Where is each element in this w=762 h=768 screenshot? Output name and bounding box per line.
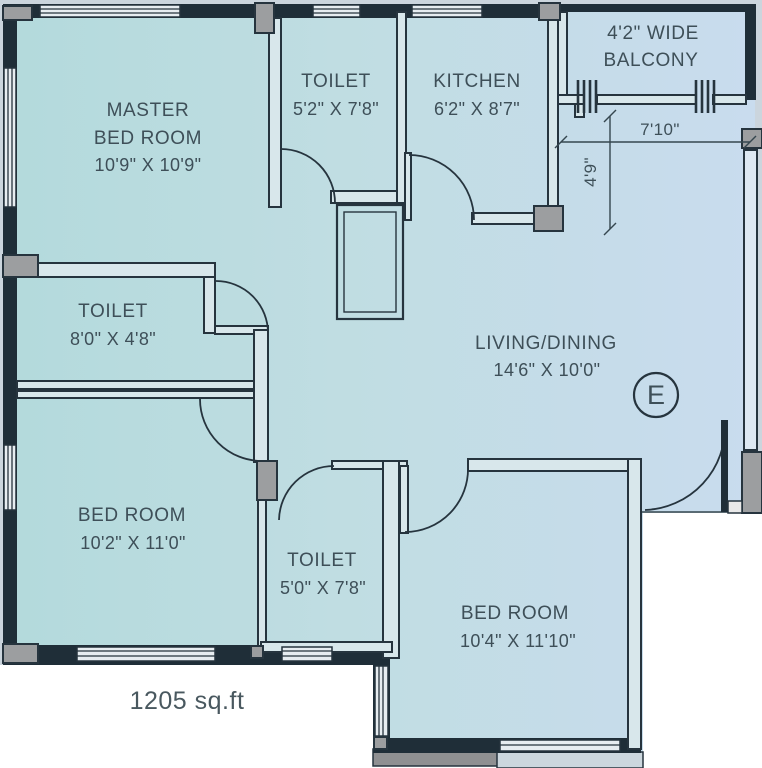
wall <box>713 95 746 104</box>
svg-text:10'9" X 10'9": 10'9" X 10'9" <box>95 155 202 175</box>
wall <box>575 104 584 117</box>
svg-text:TOILET: TOILET <box>78 301 148 322</box>
svg-text:14'6" X 10'0": 14'6" X 10'0" <box>494 360 601 380</box>
wall <box>17 381 268 389</box>
window <box>375 666 388 736</box>
svg-text:KITCHEN: KITCHEN <box>433 71 521 92</box>
column <box>255 3 274 33</box>
wall <box>560 4 755 12</box>
wall <box>468 459 641 471</box>
wall <box>254 330 268 462</box>
column <box>534 206 563 231</box>
outside-bottom-right <box>641 513 762 768</box>
wall <box>628 459 641 749</box>
wall <box>472 213 538 224</box>
window <box>40 5 180 17</box>
floor-plan-canvas: 7'10" 4'9" E MASTER BED ROOM 10'9" X 10'… <box>0 0 762 768</box>
svg-text:LIVING/DINING: LIVING/DINING <box>475 333 617 354</box>
svg-text:BALCONY: BALCONY <box>603 50 698 71</box>
window <box>4 445 16 510</box>
svg-text:TOILET: TOILET <box>301 71 371 92</box>
wall <box>38 263 215 277</box>
wall <box>204 277 215 333</box>
wall <box>548 12 558 212</box>
total-area-label: 1205 sq.ft <box>130 687 245 715</box>
door-leaf <box>400 466 408 533</box>
svg-text:10'2" X 11'0": 10'2" X 11'0" <box>80 533 186 553</box>
svg-text:BED ROOM: BED ROOM <box>94 128 202 149</box>
entry-door-leaf <box>721 420 728 512</box>
wall <box>558 12 567 97</box>
svg-text:10'4" X 11'10": 10'4" X 11'10" <box>460 631 576 651</box>
wall <box>597 95 696 104</box>
wall <box>269 18 281 207</box>
svg-text:5'2" X 7'8": 5'2" X 7'8" <box>293 99 379 119</box>
door-frame <box>728 501 742 513</box>
svg-text:8'0" X 4'8": 8'0" X 4'8" <box>70 329 156 349</box>
column <box>3 255 38 277</box>
svg-text:6'2" X 8'7": 6'2" X 8'7" <box>434 99 520 119</box>
column <box>257 461 277 500</box>
window <box>313 5 360 17</box>
window <box>4 68 16 207</box>
column <box>539 3 560 20</box>
wall <box>558 95 584 104</box>
balcony-depth-dim: 4'9" <box>581 157 600 187</box>
compass-direction: E <box>647 380 665 410</box>
window <box>77 647 215 661</box>
svg-text:4'2" WIDE: 4'2" WIDE <box>607 23 699 44</box>
wall <box>331 191 407 203</box>
column <box>3 6 32 20</box>
balcony-width-dim: 7'10" <box>640 120 680 139</box>
column <box>742 129 762 148</box>
window <box>412 5 482 17</box>
svg-text:MASTER: MASTER <box>107 100 190 121</box>
column <box>3 644 38 663</box>
wall <box>383 461 399 658</box>
wall <box>258 498 266 650</box>
column <box>251 646 263 658</box>
door-leaf <box>405 153 411 220</box>
svg-text:5'0" X 7'8": 5'0" X 7'8" <box>280 578 366 598</box>
window <box>744 150 757 450</box>
window <box>282 647 332 661</box>
column <box>742 452 762 513</box>
svg-text:BED ROOM: BED ROOM <box>461 603 569 624</box>
room-label-master-bedroom: MASTER BED ROOM 10'9" X 10'9" <box>94 100 202 175</box>
column <box>374 737 387 749</box>
wall <box>745 4 756 100</box>
floor-plan-page: 7'10" 4'9" E MASTER BED ROOM 10'9" X 10'… <box>0 0 762 768</box>
svg-text:TOILET: TOILET <box>287 550 357 571</box>
svg-text:BED ROOM: BED ROOM <box>78 505 186 526</box>
slab <box>497 752 643 768</box>
wall <box>17 391 268 398</box>
